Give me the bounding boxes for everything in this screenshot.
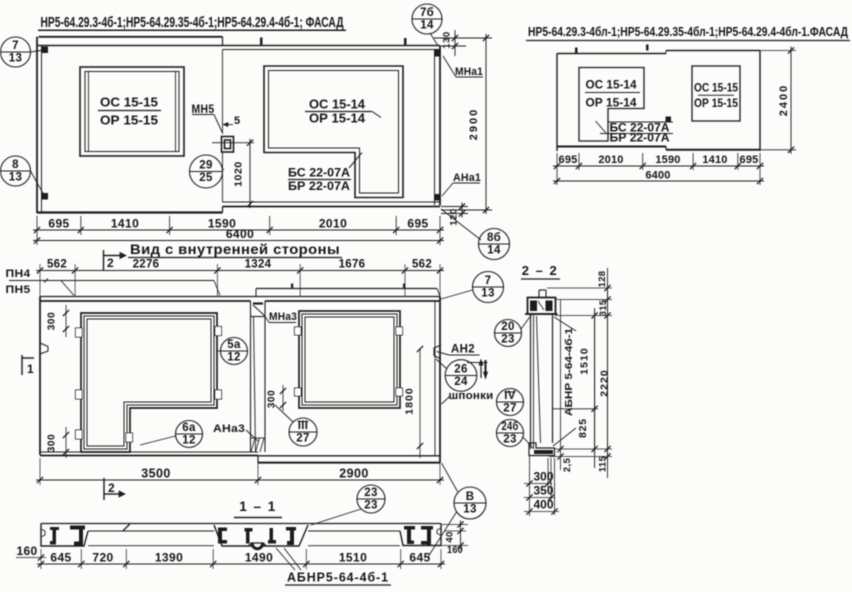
svg-text:695: 695 [48,217,69,231]
svg-text:1324: 1324 [245,259,272,271]
svg-text:115: 115 [598,455,609,472]
svg-text:27: 27 [296,433,309,445]
svg-text:1590: 1590 [655,154,680,166]
svg-text:Вид с внутренней стороны: Вид с внутренней стороны [130,241,340,257]
svg-text:АНа1: АНа1 [453,172,481,184]
svg-text:13: 13 [9,172,22,184]
svg-text:5а: 5а [227,339,241,351]
svg-text:1390: 1390 [155,551,183,565]
svg-text:23: 23 [364,500,377,512]
svg-text:128: 128 [597,271,608,288]
svg-text:АБНР 5-64-4б-1: АБНР 5-64-4б-1 [563,328,575,416]
svg-text:АН2: АН2 [451,344,475,356]
svg-text:1800: 1800 [404,387,416,414]
svg-text:120: 120 [449,208,460,225]
svg-text:НР5-64.29.3-4б-1;НР5-64.29.35-: НР5-64.29.3-4б-1;НР5-64.29.35-4б-1;НР5-6… [41,14,344,31]
svg-text:БР 22-07А: БР 22-07А [610,133,670,145]
svg-text:6а: 6а [182,422,196,434]
svg-text:1 – 1: 1 – 1 [239,499,277,514]
svg-text:2220: 2220 [599,369,611,396]
svg-text:26: 26 [454,364,467,376]
svg-text:ОС 15-14: ОС 15-14 [309,97,366,112]
svg-text:6400: 6400 [226,227,254,241]
svg-text:300: 300 [47,434,58,453]
svg-text:ОР 15-14: ОР 15-14 [586,96,637,110]
svg-text:14: 14 [487,245,501,257]
svg-text:8: 8 [12,159,19,171]
svg-text:АНа3: АНа3 [213,423,245,435]
svg-text:695: 695 [407,217,428,231]
svg-text:160: 160 [17,544,38,558]
svg-text:1410: 1410 [702,154,727,166]
svg-text:1020: 1020 [233,161,245,187]
svg-text:825: 825 [577,418,589,438]
svg-text:1510: 1510 [339,551,367,565]
svg-text:2400: 2400 [778,84,790,116]
svg-text:562: 562 [47,259,67,271]
svg-text:шпонки: шпонки [449,390,494,402]
svg-text:7: 7 [12,40,19,52]
svg-text:13: 13 [9,53,22,65]
svg-text:2 – 2: 2 – 2 [522,263,558,278]
svg-text:ОР 15-15: ОР 15-15 [100,113,158,128]
svg-text:В: В [466,491,475,503]
svg-text:160: 160 [447,544,463,556]
svg-text:7: 7 [485,275,492,287]
svg-text:315: 315 [598,299,609,316]
svg-text:1510: 1510 [579,347,591,374]
svg-text:29: 29 [199,160,212,172]
svg-text:300: 300 [47,312,58,331]
svg-text:ПН4: ПН4 [6,268,32,280]
svg-text:2: 2 [107,256,114,270]
svg-text:8б: 8б [487,232,501,244]
svg-text:24: 24 [454,376,468,388]
svg-text:350: 350 [534,484,554,498]
svg-text:МНа1: МНа1 [455,66,483,78]
svg-text:300: 300 [534,470,554,484]
svg-text:БС 22-07А: БС 22-07А [288,166,350,180]
svg-text:БР 22-07А: БР 22-07А [288,179,350,193]
svg-text:6400: 6400 [645,170,670,182]
svg-text:645: 645 [409,551,430,565]
svg-text:25: 25 [199,172,213,184]
svg-text:12: 12 [227,352,240,364]
svg-text:40: 40 [445,531,456,542]
svg-text:27: 27 [503,403,516,415]
svg-text:2,5: 2,5 [562,458,573,473]
svg-text:720: 720 [92,551,113,565]
svg-text:ОС 15-15: ОС 15-15 [694,83,739,95]
svg-text:1410: 1410 [111,217,139,231]
svg-text:5: 5 [234,115,240,127]
svg-text:695: 695 [740,154,759,166]
svg-text:695: 695 [559,154,578,166]
svg-text:1676: 1676 [339,259,366,271]
svg-text:2900: 2900 [468,108,480,140]
svg-text:ОР 15-15: ОР 15-15 [694,98,739,110]
svg-text:НР5-64.29.3-4бл-1;НР5-64.29.35: НР5-64.29.3-4бл-1;НР5-64.29.35-4бл-1;НР5… [528,24,849,39]
svg-text:23: 23 [501,334,514,346]
svg-text:1490: 1490 [245,551,273,565]
svg-text:2010: 2010 [319,217,347,231]
svg-text:7б: 7б [420,7,434,19]
svg-text:ОС 15-14: ОС 15-14 [586,78,637,92]
svg-text:23: 23 [503,434,516,446]
svg-text:12: 12 [182,435,195,447]
svg-text:3500: 3500 [141,467,170,481]
svg-text:645: 645 [50,551,71,565]
svg-text:23: 23 [364,487,377,499]
svg-text:400: 400 [534,498,554,512]
svg-text:14: 14 [420,20,434,32]
svg-text:ОР 15-14: ОР 15-14 [309,111,366,126]
svg-text:2010: 2010 [598,154,623,166]
svg-text:20: 20 [501,321,514,333]
svg-text:2900: 2900 [339,467,368,481]
svg-text:562: 562 [412,259,432,271]
svg-text:ПН5: ПН5 [6,284,31,296]
svg-text:1: 1 [27,362,34,376]
svg-text:2: 2 [108,481,115,495]
svg-text:13: 13 [481,288,494,300]
svg-text:АБНР5-64-4б-1: АБНР5-64-4б-1 [287,570,389,585]
svg-text:ОС 15-15: ОС 15-15 [100,95,158,110]
svg-text:130: 130 [442,31,453,48]
svg-text:2276: 2276 [133,259,160,271]
svg-text:24б: 24б [502,421,519,433]
svg-text:13: 13 [463,504,476,516]
svg-text:МНа3: МНа3 [269,311,297,323]
